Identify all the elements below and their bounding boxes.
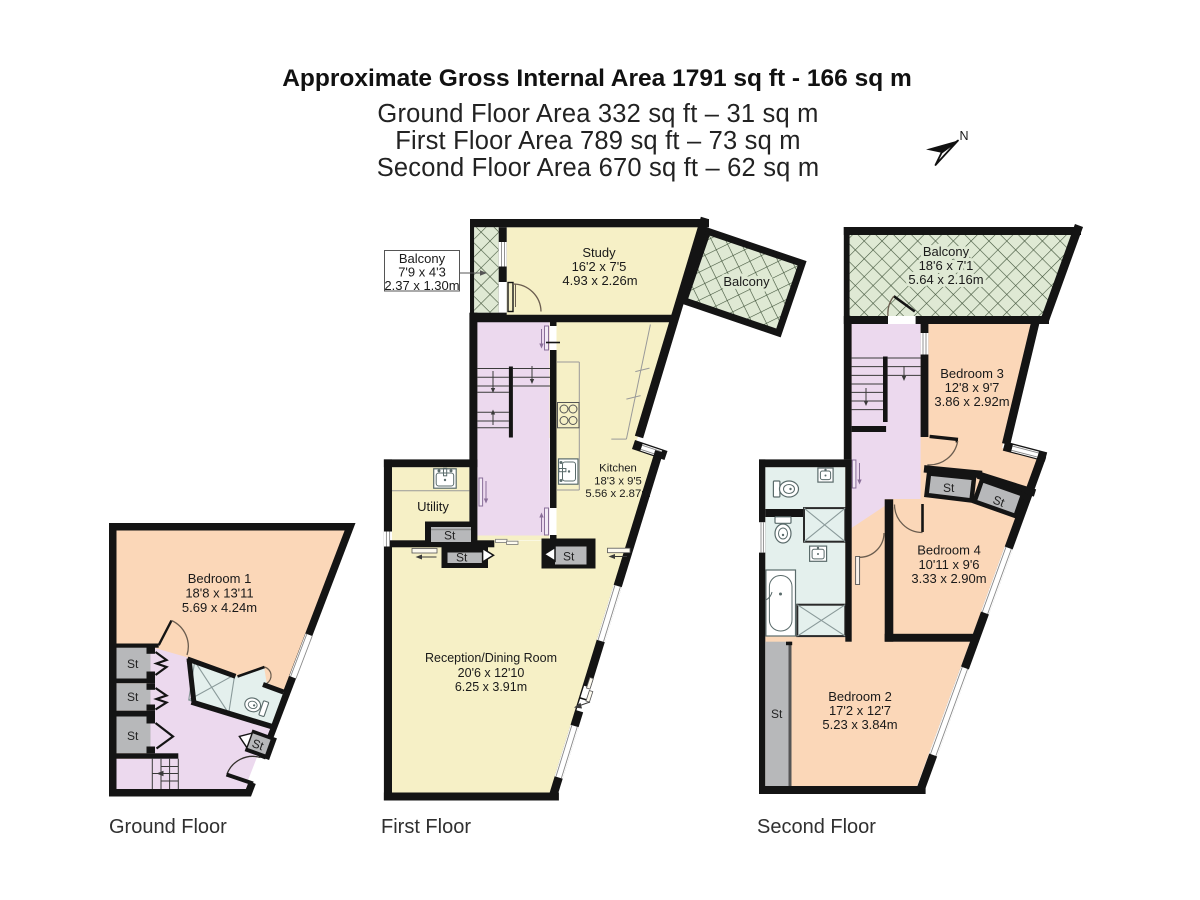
svg-text:Study: Study bbox=[582, 245, 616, 260]
svg-text:Utility: Utility bbox=[417, 499, 449, 514]
svg-text:N: N bbox=[960, 129, 969, 143]
svg-text:16'2 x 7'5: 16'2 x 7'5 bbox=[572, 259, 627, 274]
svg-text:Bedroom 3: Bedroom 3 bbox=[940, 366, 1004, 381]
svg-text:3.86 x 2.92m: 3.86 x 2.92m bbox=[934, 394, 1009, 409]
svg-text:St: St bbox=[771, 707, 783, 721]
svg-text:12'8 x 9'7: 12'8 x 9'7 bbox=[945, 380, 1000, 395]
svg-text:5.56 x 2.87m: 5.56 x 2.87m bbox=[585, 488, 650, 500]
svg-text:Reception/Dining Room: Reception/Dining Room bbox=[425, 651, 557, 665]
svg-text:Bedroom 1: Bedroom 1 bbox=[188, 571, 252, 586]
svg-text:Bedroom 2: Bedroom 2 bbox=[828, 689, 892, 704]
svg-text:Second Floor: Second Floor bbox=[757, 816, 876, 838]
svg-text:5.69 x 4.24m: 5.69 x 4.24m bbox=[182, 600, 257, 615]
svg-text:Ground Floor: Ground Floor bbox=[109, 816, 227, 838]
svg-text:St: St bbox=[563, 550, 575, 564]
svg-text:5.23 x 3.84m: 5.23 x 3.84m bbox=[822, 717, 897, 732]
svg-text:18'6 x 7'1: 18'6 x 7'1 bbox=[919, 258, 974, 273]
svg-text:Balcony: Balcony bbox=[923, 244, 970, 259]
svg-text:Ground Floor Area 332 sq ft –: Ground Floor Area 332 sq ft – 31 sq m bbox=[377, 100, 818, 128]
svg-text:17'2 x 12'7: 17'2 x 12'7 bbox=[829, 703, 891, 718]
svg-text:3.33 x 2.90m: 3.33 x 2.90m bbox=[911, 571, 986, 586]
svg-text:Approximate Gross Internal Are: Approximate Gross Internal Area 1791 sq … bbox=[282, 65, 912, 92]
svg-text:6.25 x 3.91m: 6.25 x 3.91m bbox=[455, 680, 527, 694]
svg-text:St: St bbox=[127, 729, 139, 743]
svg-text:First Floor Area 789 sq ft – 7: First Floor Area 789 sq ft – 73 sq m bbox=[395, 127, 800, 155]
svg-text:St: St bbox=[456, 551, 468, 565]
svg-text:5.64 x 2.16m: 5.64 x 2.16m bbox=[908, 272, 983, 287]
svg-text:18'3 x 9'5: 18'3 x 9'5 bbox=[594, 476, 642, 488]
svg-text:Second Floor Area 670 sq ft –: Second Floor Area 670 sq ft – 62 sq m bbox=[377, 154, 820, 182]
svg-text:St: St bbox=[127, 690, 139, 704]
svg-text:Bedroom 4: Bedroom 4 bbox=[917, 543, 981, 558]
svg-text:First Floor: First Floor bbox=[381, 816, 471, 838]
svg-text:Balcony: Balcony bbox=[723, 274, 770, 289]
svg-text:20'6 x 12'10: 20'6 x 12'10 bbox=[458, 666, 525, 680]
svg-text:10'11 x 9'6: 10'11 x 9'6 bbox=[918, 557, 979, 572]
svg-text:4.93 x 2.26m: 4.93 x 2.26m bbox=[562, 273, 637, 288]
svg-text:Kitchen: Kitchen bbox=[599, 462, 637, 474]
svg-text:St: St bbox=[127, 657, 139, 671]
svg-text:St: St bbox=[444, 529, 456, 543]
svg-text:18'8 x 13'11: 18'8 x 13'11 bbox=[185, 586, 253, 601]
svg-text:2.37 x 1.30m: 2.37 x 1.30m bbox=[384, 278, 459, 293]
svg-text:St: St bbox=[943, 481, 955, 495]
